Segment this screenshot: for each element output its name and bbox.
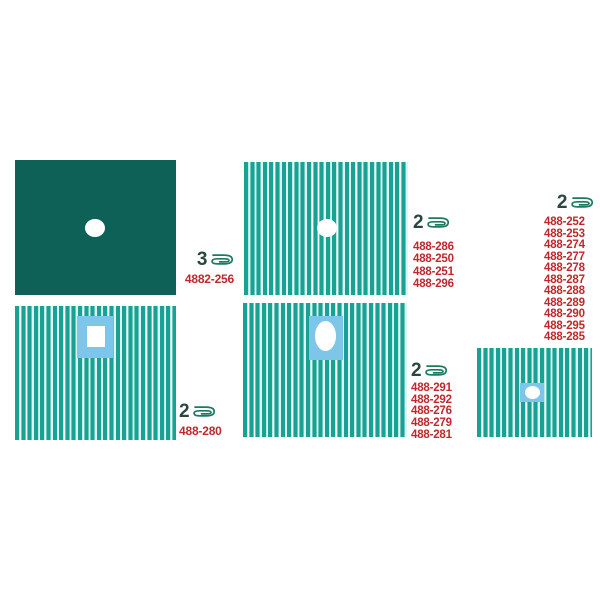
label-group-right-column: 2 488-252488-253488-274488-277488-278488… — [544, 193, 594, 344]
folded-drape-icon — [191, 405, 216, 418]
product-code: 488-285 — [544, 332, 594, 344]
label-group-solid-drape: 3 4882-256 — [172, 250, 234, 286]
fold-count: 2 — [179, 402, 189, 421]
product-code: 488-291 — [411, 383, 463, 395]
product-codes: 488-280 — [179, 425, 231, 438]
product-code: 488-288 — [544, 286, 594, 298]
product-code: 488-250 — [413, 253, 473, 265]
product-code: 488-251 — [413, 266, 473, 278]
label-group-square-window: 2 488-280 — [179, 402, 231, 438]
fold-quantity-row: 2 — [544, 193, 594, 212]
product-code: 488-296 — [413, 278, 473, 290]
adhesive-patch — [77, 316, 113, 358]
fold-quantity-row: 3 — [172, 250, 234, 269]
adhesive-patch — [309, 316, 343, 360]
drape-solid-oval-aperture — [15, 160, 176, 295]
oval-window — [525, 386, 540, 399]
folded-drape-icon — [569, 196, 594, 209]
product-code: 488-281 — [411, 430, 463, 442]
product-code: 488-252 — [544, 217, 594, 229]
product-code: 488-280 — [179, 425, 231, 438]
fold-quantity-row: 2 — [179, 402, 231, 421]
product-code: 488-278 — [544, 263, 594, 275]
fold-quantity-row: 2 — [411, 361, 463, 380]
drape-striped-oval-window — [243, 303, 407, 437]
fold-count: 2 — [411, 361, 421, 380]
rect-window — [87, 326, 105, 347]
folded-drape-icon — [423, 364, 448, 377]
oval-window — [315, 321, 336, 351]
folded-drape-icon — [209, 253, 234, 266]
product-code: 488-290 — [544, 309, 594, 321]
product-code: 488-274 — [544, 240, 594, 252]
catalog-page: 3 4882-256 2 488-286488-250488-251488-29… — [0, 0, 600, 600]
fold-count: 2 — [413, 213, 423, 232]
product-codes: 4882-256 — [172, 273, 234, 286]
product-codes: 488-291488-292488-276488-279488-281 — [411, 383, 463, 442]
fold-count: 2 — [557, 193, 567, 212]
drape-striped-square-window — [15, 306, 176, 440]
fold-count: 3 — [197, 250, 207, 269]
oval-aperture — [317, 219, 337, 237]
drape-striped-small-window — [477, 348, 592, 437]
fold-quantity-row: 2 — [413, 213, 473, 232]
product-code: 488-286 — [413, 241, 473, 253]
label-group-oval-window: 2 488-291488-292488-276488-279488-281 — [411, 361, 463, 442]
folded-drape-icon — [425, 216, 450, 229]
adhesive-patch — [520, 383, 544, 402]
oval-aperture — [85, 219, 105, 237]
product-codes: 488-286488-250488-251488-296 — [413, 241, 473, 290]
label-group-striped-oval: 2 488-286488-250488-251488-296 — [413, 213, 473, 290]
product-code: 4882-256 — [172, 273, 234, 286]
drape-striped-oval-aperture — [244, 162, 408, 295]
product-codes: 488-252488-253488-274488-277488-278488-2… — [544, 217, 594, 344]
